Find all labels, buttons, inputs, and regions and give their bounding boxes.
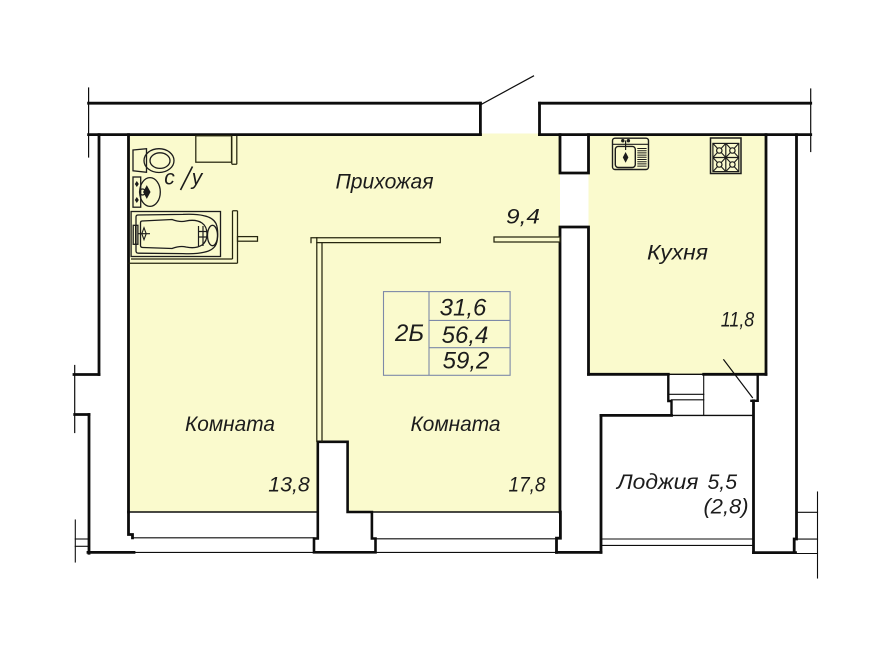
svg-text:Кухня: Кухня bbox=[647, 241, 709, 265]
svg-text:59,2: 59,2 bbox=[443, 348, 490, 375]
svg-text:13,8: 13,8 bbox=[268, 473, 310, 497]
svg-text:2Б: 2Б bbox=[394, 320, 424, 347]
svg-text:Лоджия: Лоджия bbox=[615, 470, 699, 494]
svg-text:9,4: 9,4 bbox=[506, 205, 540, 229]
svg-text:5,5: 5,5 bbox=[708, 470, 739, 494]
svg-text:56,4: 56,4 bbox=[442, 322, 489, 349]
svg-text:31,6: 31,6 bbox=[440, 295, 487, 322]
svg-text:(2,8): (2,8) bbox=[704, 495, 749, 519]
svg-text:Комната: Комната bbox=[411, 412, 501, 436]
svg-text:с: с bbox=[164, 167, 175, 190]
svg-text:у: у bbox=[190, 167, 204, 190]
svg-text:11,8: 11,8 bbox=[721, 308, 755, 332]
svg-text:17,8: 17,8 bbox=[509, 473, 546, 497]
svg-text:Комната: Комната bbox=[185, 412, 275, 436]
svg-text:Прихожая: Прихожая bbox=[336, 170, 434, 194]
